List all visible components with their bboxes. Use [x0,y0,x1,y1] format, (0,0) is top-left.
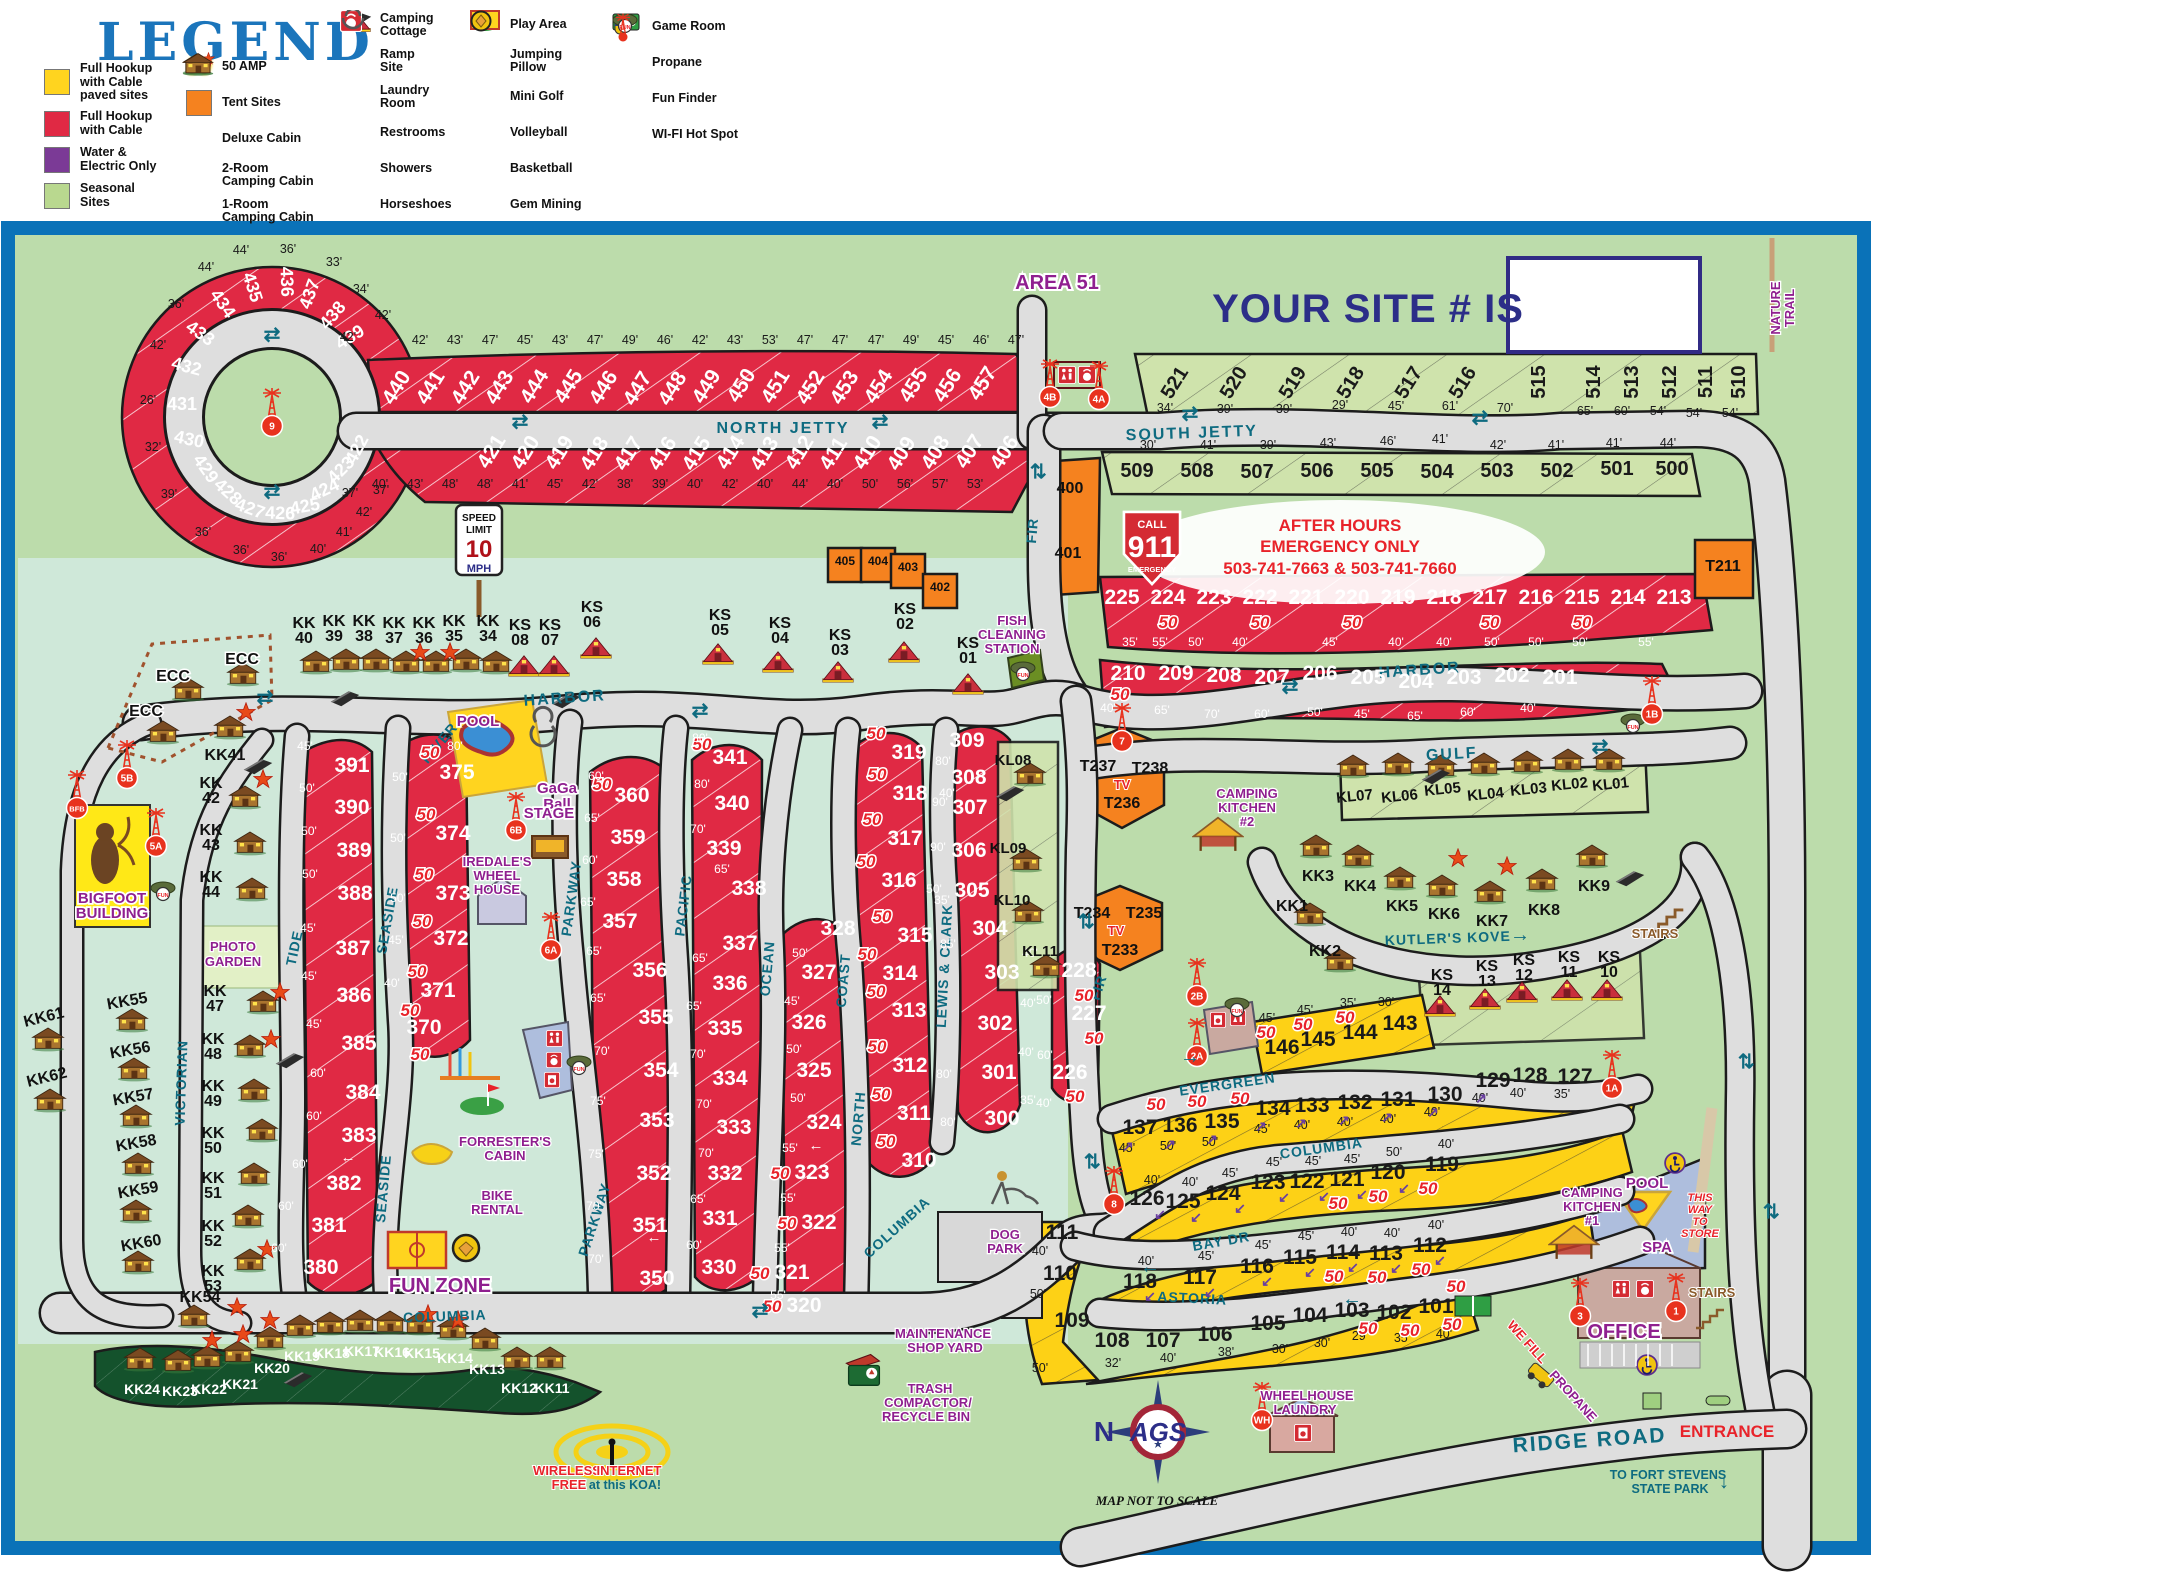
map-label: 43' [727,333,743,347]
map-label: CALL [1137,519,1167,531]
map-label: 50 [778,1214,797,1233]
map-label: 44' [198,260,214,274]
map-label: 29' [1332,398,1348,412]
map-label: KS08 [509,617,532,649]
map-label: 45' [1255,1238,1271,1252]
map-label: 41' [512,477,528,491]
map-label: 30' [1272,1342,1288,1356]
legend-item: Ramp Site [340,46,452,76]
map-label: 50 [1329,1194,1348,1213]
map-label: 502 [1540,460,1573,482]
map-label: 357 [602,910,637,933]
map-label: ENTRANCE [1680,1422,1774,1441]
map-label: 40' [1510,1086,1526,1100]
map-label: 65' [586,944,602,958]
map-label: 339 [706,837,741,860]
map-label: 314 [882,962,917,985]
map-label: 34' [353,282,369,296]
map-label: LIMIT [466,525,492,536]
map-label: 45' [306,1017,322,1031]
map-label: 50 [1147,1095,1166,1114]
map-label: 134 [1255,1097,1290,1120]
map-label: 60' [292,1157,308,1171]
map-label: ⇄ [1472,407,1489,429]
map-label: 42' [340,330,356,344]
map-label: KS01 [957,635,980,667]
legend-item: Jumping Pillow [470,46,582,76]
map-label: 45' [301,969,317,983]
map-label: 70' [690,1047,706,1061]
map-label: KK1 [1276,898,1308,915]
map-label: KK49 [201,1078,225,1110]
tower-badge-label: 1B [1646,710,1659,721]
map-label: 50 [1188,1092,1207,1111]
map-label: 371 [420,979,455,1002]
map-label: WAY [1688,1204,1714,1216]
legend-item-label: Play Area [510,18,567,32]
map-label: 313 [891,999,926,1022]
map-label: 217 [1472,586,1507,609]
map-label: 305 [954,879,989,902]
map-label: 65' [690,1192,706,1206]
map-label: KK4 [1344,878,1376,895]
map-label: 48' [442,477,458,491]
map-label: 128 [1512,1064,1547,1087]
legend-item-label: Game Room [652,20,726,34]
map-label: 383 [341,1124,376,1147]
map-label: 50 [415,865,434,884]
map-label: CABIN [484,1148,525,1163]
map-label: 40' [1100,701,1116,715]
map-label: ⇄ [1081,1153,1103,1170]
map-label: KS06 [581,599,604,631]
tower-badge-label: 6A [545,946,558,957]
map-label: FORRESTER'S [459,1134,551,1149]
map-label: 60' [278,1199,294,1213]
map-label: 42' [356,505,372,519]
map-label: 70' [594,1044,610,1058]
map-label: 42' [375,308,391,322]
map-label: KK43 [199,822,223,854]
map-label: 119 [1425,1153,1459,1176]
map-label: KS14 [1431,967,1454,999]
map-label: AGS [1129,1417,1187,1447]
map-label: 55' [782,1141,798,1155]
map-label: 436 [276,266,297,297]
map-label: 70' [588,1252,604,1266]
map-label: 106 [1197,1323,1232,1346]
map-label: 40' [1438,1137,1454,1151]
map-label: 203 [1446,666,1481,689]
map-label: 30' [1140,438,1156,452]
map-label: 30' [1314,1336,1330,1350]
map-label: 55' [780,1191,796,1205]
map-label: 133 [1294,1094,1329,1117]
map-label: KL09 [990,840,1027,857]
legend-item: WI-FI Hot Spot [612,120,738,150]
map-label: KK34 [476,613,500,645]
map-label: 60' [271,1241,287,1255]
map-label: 403 [898,560,918,574]
map-label: 42' [150,338,166,352]
map-label: 136 [1162,1114,1197,1137]
map-label: ⇄ [692,700,709,722]
map-label: ↙ [1204,1284,1216,1300]
map-label: 54' [1722,406,1738,420]
map-label: 308 [951,766,986,789]
map-label: 219 [1380,586,1415,609]
map-label: T237 [1080,758,1117,775]
map-label: ECC [225,651,259,668]
map-label: 40' [1182,1175,1198,1189]
map-label: 60' [310,1066,326,1080]
campground-map: FUN [0,0,2158,1583]
legend-item-label: Water & Electric Only [80,146,156,173]
map-label: T236 [1104,795,1141,812]
tower-badge-label: 4B [1044,393,1057,404]
map-label: MPH [467,563,492,575]
map-label: MAINTENANCE [895,1326,991,1341]
show-icon [340,154,374,184]
map-label: KK52 [201,1218,225,1250]
map-label: KS13 [1476,958,1499,990]
map-label: 210 [1110,662,1145,685]
map-label: 401 [1055,545,1082,562]
map-label: ↙ [1434,1252,1446,1268]
map-label: KS12 [1513,952,1536,984]
map-label: 40' [1018,1045,1034,1059]
map-label: ⇄ [1075,913,1097,930]
map-label: 36' [195,525,211,539]
map-label: VICTORIAN [172,1040,191,1126]
map-label: KL11 [1022,943,1058,960]
map-label: 514 [1583,364,1605,398]
map-label: 385 [341,1032,376,1055]
map-label: 70' [696,1097,712,1111]
tower-badge-label: 9 [269,422,275,433]
map-label: GARDEN [205,954,261,969]
map-label: 405 [835,554,855,568]
map-label: ↗ [1295,1115,1307,1131]
map-label: 26' [140,393,156,407]
map-label: 47' [797,333,813,347]
map-label: 40' [1341,1225,1357,1239]
map-label: 50 [1325,1267,1344,1286]
map-label: KS10 [1598,949,1621,981]
map-label: 355 [638,1006,673,1029]
map-label: T211 [1705,558,1741,575]
map-label: AREA 51 [1015,272,1099,294]
legend-item-label: Full Hookup with Cable paved sites [80,62,152,103]
map-label: KK21 [222,1376,258,1392]
map-label: ← [1342,1288,1362,1310]
map-label: 50' [299,781,315,795]
legend-item-label: Mini Golf [510,90,563,104]
legend-item-label: Basketball [510,162,573,176]
map-label: 60' [1254,707,1270,721]
map-label: YOUR SITE # IS [1212,287,1524,331]
map-label: 380 [303,1256,338,1279]
map-label: 54' [1686,406,1702,420]
map-label: KK13 [469,1361,505,1377]
legend-item-label: Tent Sites [222,96,281,110]
map-label: 205 [1350,666,1385,689]
map-label: AFTER HOURS [1279,516,1402,535]
map-label: ↙ [1154,1206,1166,1222]
map-label: 127 [1557,1065,1592,1088]
map-label: 41' [336,525,352,539]
map-label: N [1094,1416,1114,1447]
jump-icon [470,46,504,76]
map-label: 45' [1222,1166,1238,1180]
legend: LEGEND Full Hookup with Cable paved site… [22,4,812,226]
legend-item: Full Hookup with Cable [40,109,156,139]
map-label: 226 [1052,1061,1087,1084]
map-label: ↗ [1381,1109,1393,1125]
map-label: 310 [901,1149,936,1172]
map-label: 50 [1075,986,1094,1005]
map-label: 35' [1122,635,1138,649]
horse-icon [340,190,374,220]
map-label: 50' [1484,635,1500,649]
map-label: 50' [786,1042,802,1056]
map-label: 44' [233,243,249,257]
map-label: 42' [1490,438,1506,452]
map-label: KK48 [201,1031,225,1063]
map-label: PHOTO [210,939,256,954]
map-label: 352 [636,1162,671,1185]
map-label: 50' [862,477,878,491]
map-label: 328 [820,917,855,940]
sw-icon [182,88,216,118]
map-label: 50 [417,805,436,824]
map-label: 515 [1528,365,1550,398]
legend-item: Mini Golf [470,82,582,112]
map-label: 46' [657,333,673,347]
map-label: 332 [707,1162,742,1185]
map-label: HOUSE [474,882,521,897]
map-label: 50 [411,1045,430,1064]
map-label: 201 [1542,666,1577,689]
map-label: ⇄ [1282,676,1299,698]
map-label: 304 [972,917,1007,940]
map-label: 356 [632,959,667,982]
map-label: ⇄ [257,687,274,709]
map-label: 307 [952,796,987,819]
map-label: 324 [806,1111,841,1134]
map-label: 107 [1145,1329,1180,1352]
map-label: 50 [401,1001,420,1020]
map-label: 50 [867,724,886,743]
map-label: 40' [1036,1096,1052,1110]
legend-item-label: Gem Mining [510,198,582,212]
map-label: 105 [1250,1312,1285,1335]
map-label: KK9 [1578,878,1610,895]
map-label: ↓ [1719,1471,1729,1493]
map-label: FIR [1023,517,1041,544]
map-label: 311 [897,1102,931,1125]
map-label: 50 [872,1085,891,1104]
map-label: 508 [1180,460,1213,482]
map-label: 50 [1085,1029,1104,1048]
map-label: 374 [435,822,470,845]
map-label: KK35 [442,613,466,645]
map-label: 384 [345,1081,380,1104]
map-label: 218 [1426,586,1461,609]
map-label: 42' [412,333,428,347]
map-label: ⇄ [872,411,889,433]
map-label: KS04 [769,615,792,647]
volley-icon [470,118,504,148]
map-label: 80' [447,739,463,753]
map-label: 50' [302,867,318,881]
tower-badge-label: 2B [1191,992,1204,1003]
map-label: 80' [694,777,710,791]
map-label: 50 [1359,1319,1378,1338]
map-label: 36' [233,543,249,557]
map-label: 50' [390,891,406,905]
map-label: 50 [1412,1260,1431,1279]
tower-badge-label: 5A [150,842,163,853]
map-label: 42' [692,333,708,347]
legend-item: Gem Mining [470,190,582,220]
map-label: ↙ [1347,1259,1359,1275]
gem-icon [470,190,504,220]
map-label: ↗ [1255,1118,1267,1134]
map-label: 70' [698,1146,714,1160]
map-label: T238 [1132,760,1169,777]
map-label: 359 [610,826,645,849]
map-label: 45' [1354,707,1370,721]
map-label: 354 [643,1059,678,1082]
map-label: STORE [1681,1228,1719,1240]
map-label: ↗ [1206,1131,1218,1147]
map-label: STAGE [524,805,575,822]
legend-item-label: Showers [380,162,432,176]
map-label: 65' [1577,404,1593,418]
map-label: 322 [801,1211,836,1234]
map-label: 55' [774,1241,790,1255]
map-label: T235 [1126,905,1163,922]
map-label: 60' [1460,705,1476,719]
map-label: ← [901,1049,916,1066]
laun-icon [340,82,374,112]
map-label: 32' [145,440,161,454]
map-label: WHEEL [474,868,521,883]
map-label: 338 [731,877,766,900]
map-label: 70' [1497,401,1513,415]
map-label: 39' [161,487,177,501]
map-label: 431 [167,394,197,414]
map-label: GaGa [537,780,578,797]
map-label: 80' [935,754,951,768]
map-label: 50 [1343,613,1362,632]
map-label: 40' [1144,1173,1160,1187]
map-label: 315 [897,924,932,947]
map-label: 302 [977,1012,1012,1035]
map-label: 360 [614,784,649,807]
map-label: STAIRS [1689,1285,1736,1300]
map-label: 10 [466,536,493,563]
map-label: 326 [791,1011,826,1034]
map-label: 40' [687,477,703,491]
map-label: TRASH [908,1381,953,1396]
map-label: 331 [702,1207,737,1230]
map-label: 202 [1494,664,1529,687]
map-label: 49' [622,333,638,347]
legend-item: Restrooms [340,118,452,148]
map-label: 45' [1305,1154,1321,1168]
map-label: 45' [1298,1229,1314,1243]
map-label: 325 [796,1059,831,1082]
map-label: 131 [1380,1088,1415,1111]
map-label: 39' [1217,402,1233,416]
sw-icon [40,67,74,97]
map-label: 50 [1336,1008,1355,1027]
map-label: TRAIL [1782,289,1797,327]
map-label: 45' [547,477,563,491]
map-label: 70' [586,1199,602,1213]
map-label: 35' [1554,1087,1570,1101]
map-label: 36' [280,242,296,256]
map-label: 90' [930,840,946,854]
map-label: 65' [686,999,702,1013]
map-label: ⇄ [1760,1203,1782,1220]
map-label: 216 [1518,586,1553,609]
map-label: KS05 [709,607,732,639]
map-label: 50 [863,810,882,829]
map-label: 60' [588,769,604,783]
map-label: 41' [1606,436,1622,450]
cabB-icon [182,196,216,226]
map-label: 45' [297,739,313,753]
map-label: 45' [300,921,316,935]
legend-col-1: Full Hookup with Cable paved sitesFull H… [40,62,156,217]
map-label: ↙ [1318,1188,1330,1204]
map-label: 50' [1032,1361,1048,1375]
map-label: 57' [932,477,948,491]
map-label: 54' [1650,404,1666,418]
map-label: 222 [1242,586,1277,609]
map-label: → [1510,924,1530,946]
cabStar-icon [182,160,216,190]
map-label: 50 [857,852,876,871]
map-label: 36' [271,550,287,564]
map-label: 45' [388,933,404,947]
map-label: 209 [1158,662,1193,685]
map-label: 33' [326,255,342,269]
map-label: 501 [1600,458,1633,480]
map-label: 208 [1206,664,1241,687]
map-label: ⇄ [1592,736,1609,758]
map-label: 47' [587,333,603,347]
map-label: 65' [692,951,708,965]
legend-item: Seasonal Sites [40,181,156,211]
map-label: KK3 [1302,868,1334,885]
map-label: 510 [1728,365,1750,398]
map-label: OFFICE [1587,1321,1660,1343]
legend-item-label: Jumping Pillow [510,48,562,75]
map-label: 45' [1297,1003,1313,1017]
map-label: 506 [1300,460,1333,482]
map-label: #2 [1240,814,1254,829]
map-label: GULF [1426,745,1478,765]
map-label: 402 [930,580,950,594]
map-label: ↗ [1475,1090,1487,1106]
map-label: 50 [877,1132,896,1151]
legend-item-label: Full Hookup with Cable [80,110,152,137]
wifi-icon [612,120,646,150]
